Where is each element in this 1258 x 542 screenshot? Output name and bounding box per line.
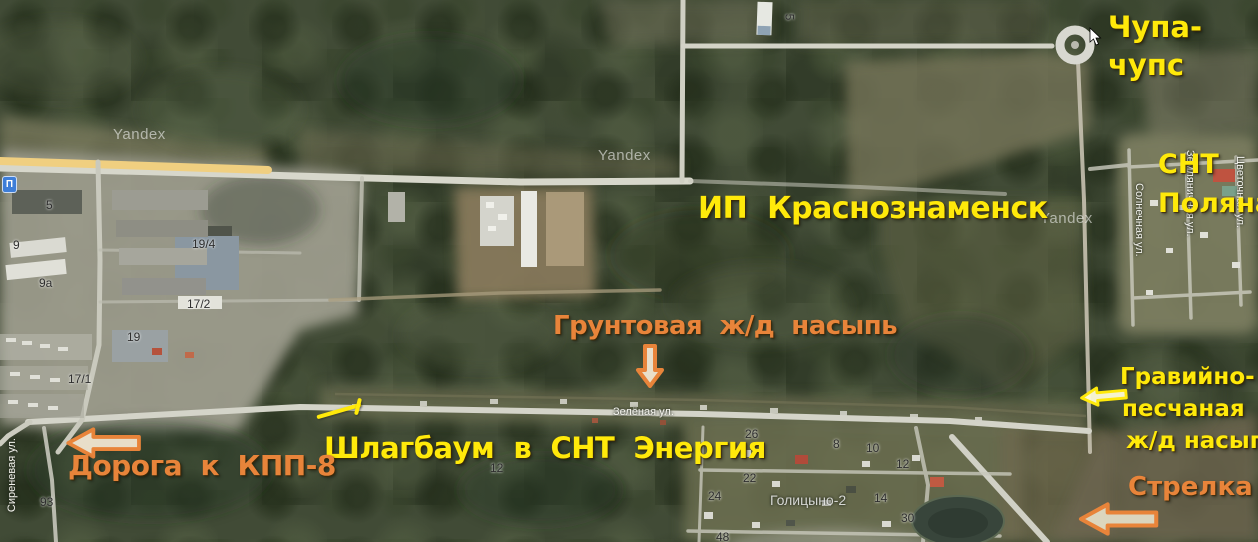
annotation-graviyno-line1: Гравийно- xyxy=(1120,365,1255,390)
plot-number: 8 xyxy=(833,437,840,451)
pond xyxy=(912,496,1004,542)
plot-number: 12 xyxy=(896,457,909,471)
street-label-sirenevaya: Сиреневая ул. xyxy=(6,438,18,512)
settlement-label-golitsyno: Голицыно-2 xyxy=(770,492,846,508)
building-number: 19/4 xyxy=(192,237,215,251)
yandex-watermark: Yandex xyxy=(598,147,651,164)
annotation-shlagbaum: Шлагбаум в СНТ Энергия xyxy=(324,433,766,465)
building-number: 93 xyxy=(40,495,53,509)
building-number: 5 xyxy=(782,14,796,21)
building-number: 9а xyxy=(39,276,52,290)
poi-icon-p[interactable]: П xyxy=(2,176,17,193)
street-label-zelenaya: Зелёная ул. xyxy=(613,406,674,418)
annotation-chupa-chups-line2: чупс xyxy=(1108,50,1184,82)
plot-number: 48 xyxy=(716,530,729,542)
annotation-chupa-chups-line1: Чупа- xyxy=(1108,12,1202,44)
annotation-snt-polyana-line1: СНТ xyxy=(1158,150,1219,180)
annotation-graviyno-line2: песчаная xyxy=(1122,397,1245,422)
roundabout xyxy=(1060,30,1090,60)
annotation-snt-polyana-line2: Поляна xyxy=(1158,189,1258,219)
yandex-watermark: Yandex xyxy=(113,126,166,143)
plot-number: 10 xyxy=(866,441,879,455)
plot-number: 22 xyxy=(743,471,756,485)
building-number: 17/1 xyxy=(68,372,91,386)
road-industrial-h2 xyxy=(100,300,358,302)
mouse-cursor xyxy=(1089,27,1102,46)
plot-number: 14 xyxy=(874,491,887,505)
street-label-solnechnaya: Солнечная ул. xyxy=(1133,183,1145,257)
down-arrow xyxy=(635,344,665,388)
building-number: 17/2 xyxy=(187,297,210,311)
plot-number: 30 xyxy=(901,511,914,525)
annotation-graviyno-line3: ж/д насыпь xyxy=(1126,429,1258,454)
annotation-gruntovaya-nasyp: Грунтовая ж/д насыпь xyxy=(553,312,897,341)
annotation-strelka: Стрелка xyxy=(1128,473,1253,502)
road-vertical-top xyxy=(682,0,683,181)
annotation-doroga-kpp8: Дорога к КПП-8 xyxy=(68,451,336,482)
left-arrow-strelka xyxy=(1078,502,1160,536)
plot-number: 24 xyxy=(708,489,721,503)
building-number: 19 xyxy=(127,330,140,344)
building-number: 5 xyxy=(46,198,53,212)
satellite-map[interactable]: Yandex Yandex Yandex Зелёная ул. Солнечн… xyxy=(0,0,1258,542)
building-number: 9 xyxy=(13,238,20,252)
building-top-center xyxy=(756,2,772,36)
annotation-ip-krasnoznamensk: ИП Краснознаменск xyxy=(698,192,1048,225)
